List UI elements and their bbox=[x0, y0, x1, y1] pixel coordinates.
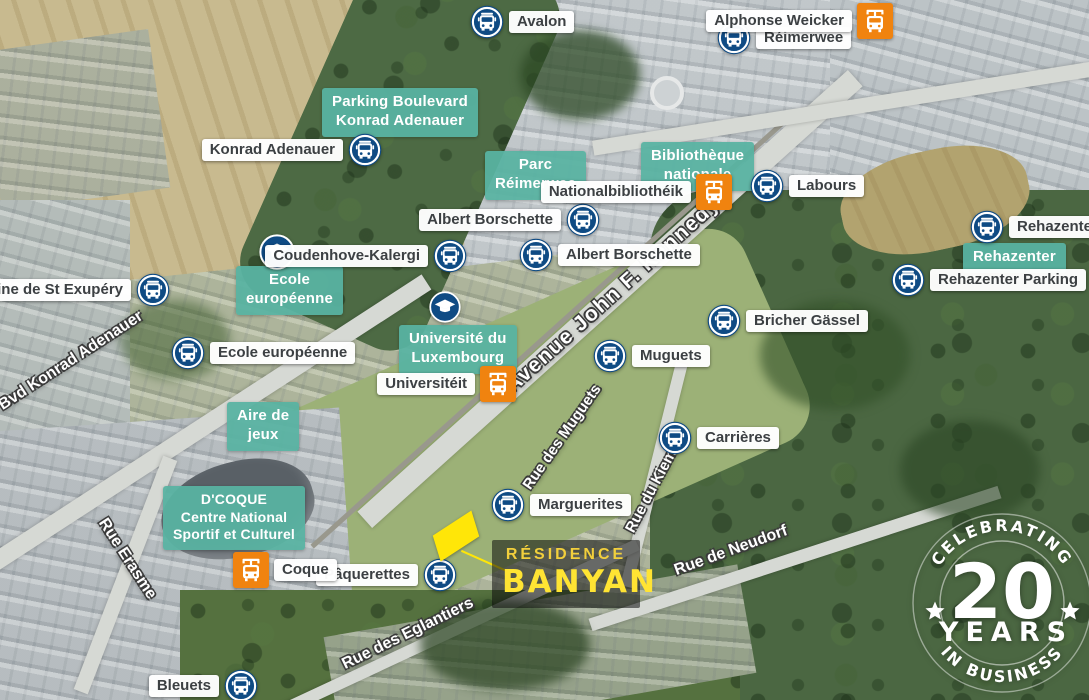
bus-stop-labours: Labours bbox=[750, 169, 864, 203]
residence-banyan-label: RÉSIDENCE BANYAN bbox=[492, 540, 640, 608]
bus-icon bbox=[519, 238, 553, 272]
street-label-rue-des-eglantiers: Rue des Eglantiers bbox=[339, 594, 476, 673]
bus-icon bbox=[470, 5, 504, 39]
street-label-bvd-konrad: Bvd Konrad Adenauer bbox=[0, 308, 146, 415]
street-label-rue-erasme: Rue Erasme bbox=[94, 515, 159, 602]
bus-icon bbox=[224, 669, 258, 700]
bus-stop-label: Bleuets bbox=[149, 675, 219, 697]
bus-stop-marguerites: Marguerites bbox=[491, 488, 631, 522]
roundabout bbox=[650, 76, 684, 110]
bus-stop-paquerettes: Pâquerettes bbox=[316, 558, 457, 592]
bus-stop-label: Coudenhove-Kalergi bbox=[265, 245, 428, 267]
bus-stop-label: Muguets bbox=[632, 345, 710, 367]
tram-stop-alphonse-weicker: Alphonse Weicker bbox=[706, 3, 893, 39]
bus-stop-label: Carrières bbox=[697, 427, 779, 449]
bus-stop-albert-borschette-2: Albert Borschette bbox=[519, 238, 700, 272]
bus-icon bbox=[136, 273, 170, 307]
satellite-map: Avenue John F. Kennedy Bvd Konrad Adenau… bbox=[0, 0, 1089, 700]
bus-stop-rehazenter: Rehazenter bbox=[970, 210, 1089, 244]
vegetation-patch bbox=[520, 30, 640, 120]
street-label-rue-des-muguets: Rue des Muguets bbox=[519, 381, 604, 492]
bus-stop-label: Albert Borschette bbox=[558, 244, 700, 266]
bus-stop-avalon: Avalon bbox=[470, 5, 574, 39]
anniversary-badge: CELEBRATING 20 YEARS IN BUSINESS bbox=[907, 508, 1089, 700]
tram-stop-label: Alphonse Weicker bbox=[706, 10, 852, 32]
area-label-parking-konrad-adenauer: Parking Boulevard Konrad Adenauer bbox=[322, 88, 478, 137]
bus-stop-carrieres: Carrières bbox=[658, 421, 779, 455]
area-label-aire-de-jeux: Aire de jeux bbox=[227, 402, 299, 451]
graduation-cap-icon bbox=[429, 291, 461, 323]
bus-stop-bricher-gassel: Bricher Gässel bbox=[707, 304, 868, 338]
bus-icon bbox=[433, 239, 467, 273]
area-label-dcoque: D'COQUE Centre National Sportif et Cultu… bbox=[163, 486, 305, 550]
village-left bbox=[0, 29, 170, 211]
street-label-rue-de-neudorf: Rue de Neudorf bbox=[672, 522, 790, 580]
bus-stop-label: Marguerites bbox=[530, 494, 631, 516]
tram-stop-label: Nationalbibliothéik bbox=[541, 181, 691, 203]
bus-icon bbox=[658, 421, 692, 455]
tram-stop-coque: Coque bbox=[233, 552, 337, 588]
area-label-ecole-europeenne: Ecole européenne bbox=[236, 266, 343, 315]
tram-icon bbox=[480, 366, 516, 402]
bus-stop-antoine-de-st-exupery: Antoine de St Exupéry bbox=[0, 273, 170, 307]
tram-stop-label: Universitéit bbox=[377, 373, 475, 395]
bus-stop-coudenhove-kalergi: Coudenhove-Kalergi bbox=[265, 239, 467, 273]
road-rue-erasme bbox=[74, 456, 178, 695]
tram-icon bbox=[696, 174, 732, 210]
bus-stop-label: Ecole européenne bbox=[210, 342, 355, 364]
bus-stop-label: Rehazenter Parking bbox=[930, 269, 1086, 291]
bus-stop-konrad-adenauer: Konrad Adenauer bbox=[202, 133, 382, 167]
bus-stop-label: Albert Borschette bbox=[419, 209, 561, 231]
vegetation-patch bbox=[900, 420, 1040, 520]
bus-stop-label: Konrad Adenauer bbox=[202, 139, 343, 161]
bus-icon bbox=[970, 210, 1004, 244]
bus-icon bbox=[891, 263, 925, 297]
bus-icon bbox=[171, 336, 205, 370]
tram-stop-nationalbibliotheik: Nationalbibliothéik bbox=[541, 174, 732, 210]
bus-icon bbox=[750, 169, 784, 203]
tram-stop-universiteit: Universitéit bbox=[377, 366, 516, 402]
bus-icon bbox=[423, 558, 457, 592]
bus-icon bbox=[707, 304, 741, 338]
bus-stop-ecole-europeenne: Ecole européenne bbox=[171, 336, 355, 370]
bus-stop-rehazenter-parking: Rehazenter Parking bbox=[891, 263, 1086, 297]
bus-icon bbox=[593, 339, 627, 373]
residence-kicker: RÉSIDENCE bbox=[502, 546, 630, 564]
tram-stop-label: Coque bbox=[274, 559, 337, 581]
bus-stop-muguets: Muguets bbox=[593, 339, 710, 373]
bus-icon bbox=[348, 133, 382, 167]
bus-stop-label: Bricher Gässel bbox=[746, 310, 868, 332]
bus-stop-label: Labours bbox=[789, 175, 864, 197]
bus-stop-label: Antoine de St Exupéry bbox=[0, 279, 131, 301]
bus-icon bbox=[491, 488, 525, 522]
bus-stop-label: Avalon bbox=[509, 11, 574, 33]
bus-stop-bleuets: Bleuets bbox=[149, 669, 258, 700]
tram-icon bbox=[233, 552, 269, 588]
tram-icon bbox=[857, 3, 893, 39]
residence-name: BANYAN bbox=[502, 566, 630, 599]
bus-stop-label: Rehazenter bbox=[1009, 216, 1089, 238]
